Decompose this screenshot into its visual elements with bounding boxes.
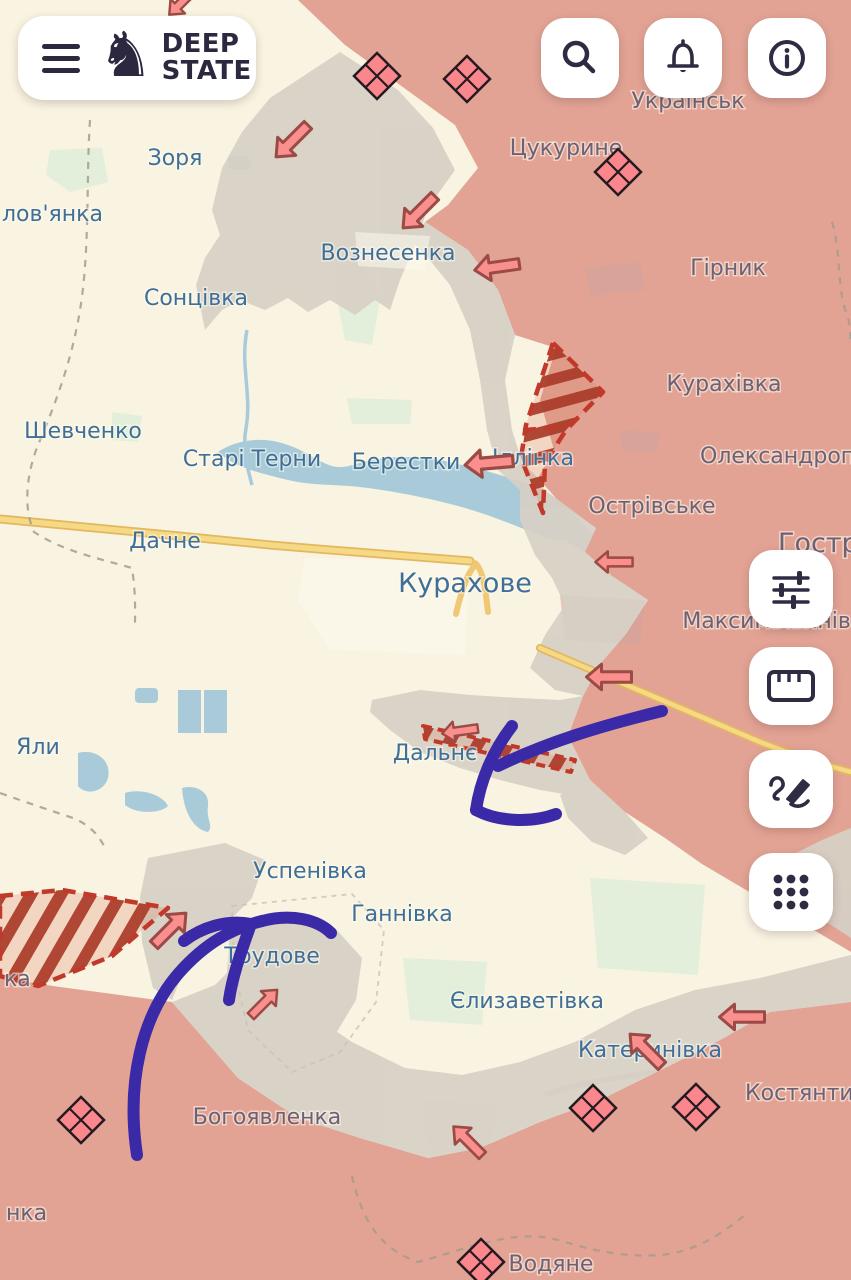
notifications-button[interactable] xyxy=(644,18,722,98)
map-label: Дальнє xyxy=(393,741,477,766)
map-label: Курахівка xyxy=(667,372,782,397)
draw-button[interactable] xyxy=(749,750,833,828)
map-label: лов'янка xyxy=(2,202,103,227)
map-label: Вознесенка xyxy=(321,241,456,266)
map-label: Сонцівка xyxy=(144,286,248,311)
apps-grid-icon xyxy=(768,869,814,915)
map-canvas[interactable]: Зоря лов'янка Українськ Цукурине Вознесе… xyxy=(0,0,851,1280)
map-label: Єлизаветівка xyxy=(450,989,604,1014)
map-label: Водяне xyxy=(509,1252,594,1277)
map-label: ка xyxy=(4,967,31,992)
map-label: Яли xyxy=(16,735,60,760)
map-label: Зоря xyxy=(148,146,203,171)
map-label: Берестки xyxy=(352,450,461,475)
brand-pill: ♞ DEEP STATE xyxy=(18,16,256,100)
info-button[interactable] xyxy=(748,18,826,98)
filters-button[interactable] xyxy=(749,550,833,628)
map-label: Ганнівка xyxy=(351,902,453,927)
search-button[interactable] xyxy=(541,18,619,98)
map-label: Успенівка xyxy=(253,859,367,884)
search-icon xyxy=(558,36,602,80)
brand-line2: STATE xyxy=(162,58,252,85)
draw-pen-icon xyxy=(767,765,815,813)
bell-icon xyxy=(660,35,706,81)
map-label: Цукурине xyxy=(510,136,623,161)
menu-button[interactable] xyxy=(42,44,80,73)
ruler-icon xyxy=(766,666,816,706)
brand-wordmark: DEEP STATE xyxy=(162,31,252,85)
filters-sliders-icon xyxy=(768,566,814,612)
map-label: Шевченко xyxy=(24,419,142,444)
map-label: Острівське xyxy=(588,494,715,519)
map-label: Старі Терни xyxy=(183,447,321,472)
deepstate-map-app: Зоря лов'янка Українськ Цукурине Вознесе… xyxy=(0,0,851,1280)
info-icon xyxy=(764,35,810,81)
knight-logo-icon: ♞ xyxy=(98,25,154,85)
map-label: Олександропі xyxy=(700,444,851,469)
map-label: нка xyxy=(6,1201,47,1226)
brand-line1: DEEP xyxy=(162,31,252,58)
map-label: Костянти xyxy=(745,1081,851,1106)
map-label: Курахове xyxy=(398,568,532,599)
apps-button[interactable] xyxy=(749,853,833,931)
measure-button[interactable] xyxy=(749,647,833,725)
map-label: Богоявленка xyxy=(193,1105,342,1130)
map-label: Дачне xyxy=(129,529,201,554)
map-label: Гірник xyxy=(690,256,765,281)
